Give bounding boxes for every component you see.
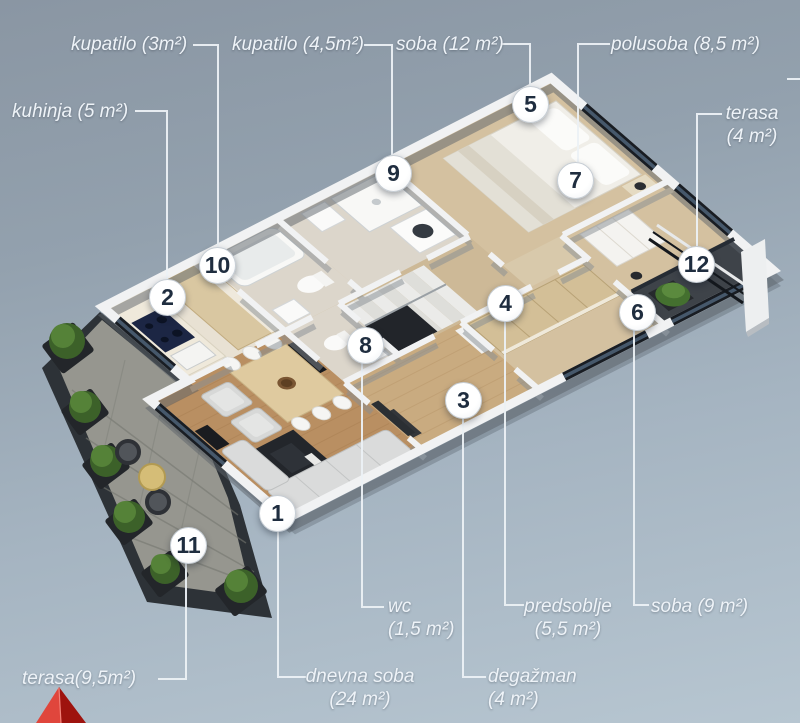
label-soba-9: soba (9 m²) — [651, 595, 748, 618]
label-polusoba: polusoba (8,5 m²) — [611, 33, 760, 56]
connector-kuhinja — [135, 111, 167, 279]
label-soba-12: soba (12 m²) — [396, 33, 504, 56]
connector-kupatilo3 — [193, 45, 218, 247]
marker-6: 6 — [619, 294, 656, 331]
label-kupatilo-45: kupatilo (4,5m²) — [232, 33, 364, 56]
label-degazman: degažman (4 m²) — [488, 665, 577, 711]
terrace-chair — [147, 491, 169, 513]
marker-11: 11 — [170, 527, 207, 564]
marker-10: 10 — [199, 247, 236, 284]
terrace-table — [139, 464, 165, 490]
marker-1: 1 — [259, 495, 296, 532]
marker-2: 2 — [149, 279, 186, 316]
marker-9: 9 — [375, 155, 412, 192]
marker-4: 4 — [487, 285, 524, 322]
label-kupatilo-3: kupatilo (3m²) — [71, 33, 187, 56]
marker-3: 3 — [445, 382, 482, 419]
marker-8: 8 — [347, 327, 384, 364]
connector-soba9 — [634, 330, 649, 605]
connector-degazman — [463, 418, 486, 677]
label-kuhinja: kuhinja (5 m²) — [12, 100, 128, 123]
marker-7: 7 — [557, 162, 594, 199]
connector-soba12 — [502, 44, 530, 86]
marker-5: 5 — [512, 86, 549, 123]
label-terasa-95: terasa(9,5m²) — [22, 667, 136, 690]
terrace-chair — [117, 441, 139, 463]
connector-dnevna — [278, 531, 306, 677]
label-predsoblje: predsoblje (5,5 m²) — [518, 595, 618, 641]
label-dnevna-soba: dnevna soba (24 m²) — [295, 665, 425, 711]
label-terasa-4: terasa (4 m²) — [712, 102, 792, 148]
label-wc: wc (1,5 m²) — [388, 595, 455, 641]
red-pyramid-logo — [36, 687, 86, 723]
floor-plan-page: 1 2 3 4 5 6 7 8 9 10 11 12 kupatilo (3m²… — [0, 0, 800, 723]
marker-12: 12 — [678, 246, 715, 283]
connector-kupatilo45 — [364, 45, 392, 155]
